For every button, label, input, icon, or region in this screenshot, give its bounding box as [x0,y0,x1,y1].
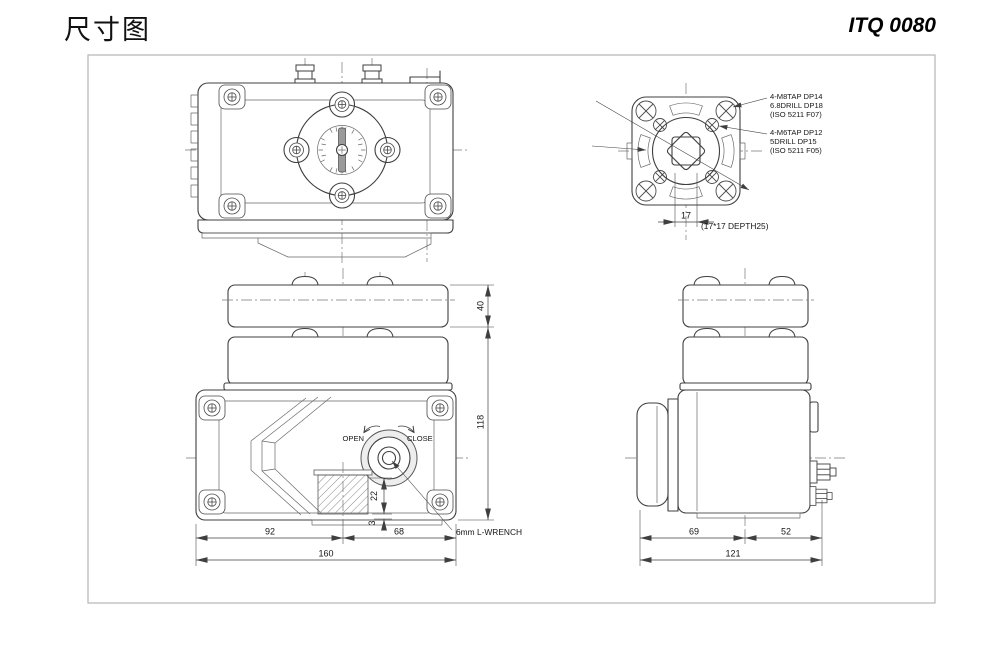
callout-text: (ISO 5211 F07) [770,110,822,119]
corner-screw-icon [199,396,225,420]
callout-outer-holes: 4-M8TAP DP14 6.8DRILL DP18 (ISO 5211 F07… [770,92,823,119]
cover-flange [224,383,452,390]
callout-text: 5DRILL DP15 [770,137,817,146]
dim-value: 118 [476,415,486,429]
side-tab [810,402,818,432]
dim-value: 160 [318,549,333,559]
outer-bolt-hole-icon [636,101,656,121]
top-cover [228,337,448,385]
wrench-note: 6mm L-WRENCH [456,527,522,537]
callout-inner-holes: 4-M6TAP DP12 5DRILL DP15 (ISO 5211 F05) [770,128,822,155]
dial-screw-icon [381,143,395,157]
cover-flange [680,383,811,390]
dim-value: 40 [476,301,486,311]
cable-gland-cap [295,65,315,83]
outer-bolt-hole-icon [636,181,656,201]
close-label: CLOSE [407,434,433,443]
open-label: OPEN [342,434,364,443]
corner-screw-icon [199,490,225,514]
callout-text: (ISO 5211 F05) [770,146,822,155]
dim-value: 121 [725,549,740,559]
dimension-drawing-svg: 4-M8TAP DP14 6.8DRILL DP18 (ISO 5211 F07… [0,0,1000,648]
motor-housing [637,403,668,506]
corner-screw-icon [219,194,245,218]
actuator-body-side [678,390,810,513]
callout-text: 6.8DRILL DP18 [770,101,823,110]
corner-screw-icon [425,194,451,218]
model-number: ITQ 0080 [848,14,936,38]
top-cover [683,337,808,385]
dim-value: 69 [689,527,699,537]
dial-screw-icon [335,189,349,203]
dim-value: 3 [367,520,377,525]
outer-bolt-hole-icon [716,101,736,121]
dim-value: 17 [681,211,691,221]
cover-lifted-position [228,285,448,327]
page-title: 尺寸图 [64,8,151,47]
socket-note: (17*17 DEPTH25) [701,221,769,231]
outer-bolt-hole-icon [716,181,736,201]
dim-value: 92 [265,527,275,537]
callout-text: 4-M8TAP DP14 [770,92,822,101]
callout-text: 4-M6TAP DP12 [770,128,822,137]
motor-housing-joint [668,399,678,511]
drawing-page: 尺寸图 ITQ 0080 [0,0,1000,648]
corner-screw-icon [219,85,245,109]
dial-screw-icon [290,143,304,157]
dim-value: 52 [781,527,791,537]
dial-screw-icon [335,98,349,112]
cable-gland-cap [362,65,382,83]
dim-value: 68 [394,527,404,537]
dim-value: 22 [369,491,379,501]
corner-screw-icon [427,490,453,514]
cover-lifted-position [683,285,808,327]
corner-screw-icon [425,85,451,109]
corner-screw-icon [427,396,453,420]
